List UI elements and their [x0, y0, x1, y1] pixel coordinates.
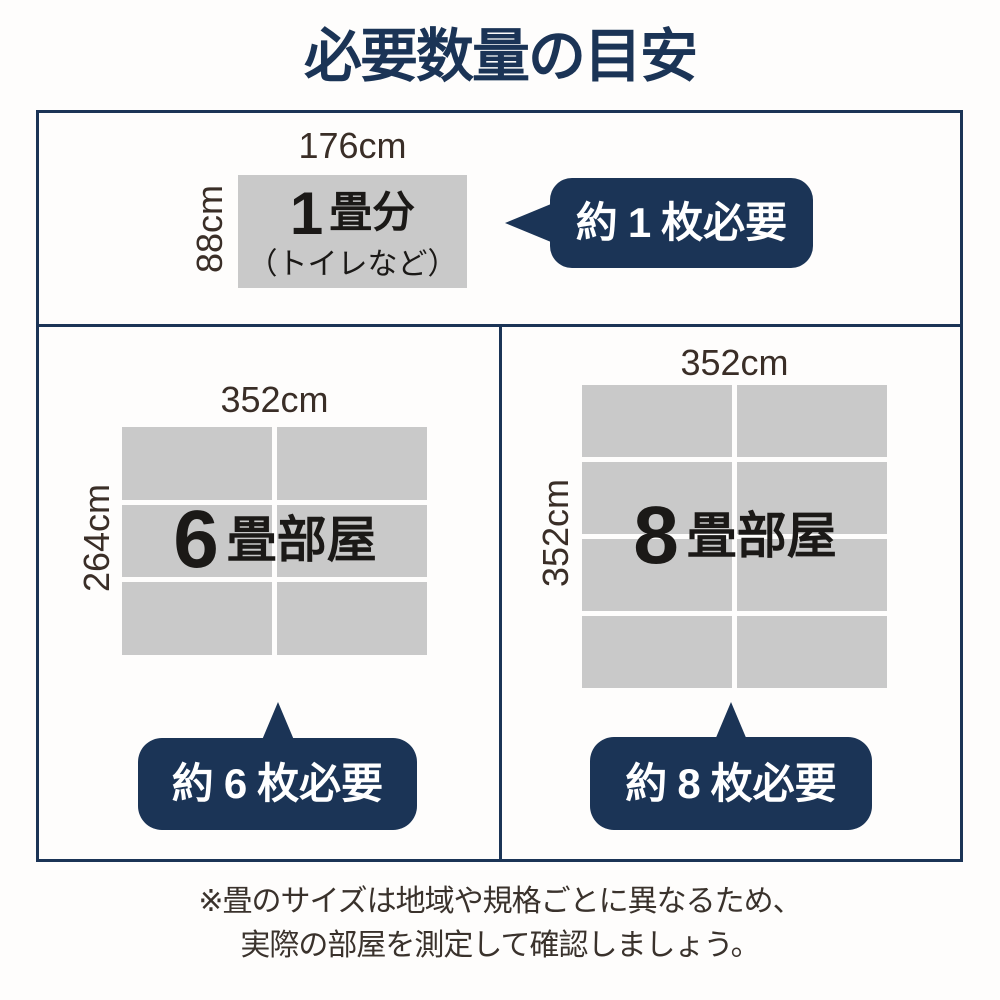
- one-tatami-unit: 畳分: [329, 192, 415, 235]
- room-label: 畳部屋: [687, 511, 837, 561]
- one-tatami-note: （トイレなど）: [248, 250, 458, 280]
- bubble-text: 約: [576, 202, 618, 244]
- footer-note-line2: 実際の部屋を測定して確認しましょう。: [0, 924, 1000, 968]
- six-tatami-height-label: 264cm: [79, 484, 115, 592]
- eight-tatami-bubble: 約8枚必要: [590, 737, 872, 830]
- bubble-text: 枚必要: [711, 763, 837, 805]
- tatami-cell: [277, 427, 427, 500]
- one-tatami-title: 1 畳分: [290, 184, 415, 244]
- tatami-cell: [122, 582, 272, 655]
- one-tatami-bubble: 約1枚必要: [550, 178, 813, 268]
- bubble-tail-up-icon: [262, 702, 294, 740]
- tatami-cell: [737, 616, 887, 688]
- room-number: 8: [633, 495, 679, 577]
- one-tatami-number: 1: [290, 184, 323, 244]
- one-tatami-height-label: 88cm: [192, 185, 228, 273]
- room-label: 畳部屋: [227, 515, 377, 565]
- six-tatami-width-label: 352cm: [122, 382, 427, 418]
- bubble-tail-left-icon: [505, 204, 551, 242]
- page-title: 必要数量の目安: [0, 24, 1000, 90]
- room-number: 6: [173, 499, 219, 581]
- bubble-text: 枚必要: [257, 763, 383, 805]
- one-tatami-rect: 1 畳分 （トイレなど）: [238, 175, 467, 288]
- bubble-text: 約: [625, 763, 667, 805]
- bubble-tail-up-icon: [715, 702, 747, 740]
- six-tatami-bubble: 約6枚必要: [138, 738, 417, 830]
- footer-note-line1: ※畳のサイズは地域や規格ごとに異なるため、: [0, 880, 1000, 924]
- bubble-count: 8: [677, 763, 700, 805]
- bubble-count: 6: [224, 763, 247, 805]
- footer-note: ※畳のサイズは地域や規格ごとに異なるため、 実際の部屋を測定して確認しましょう。: [0, 880, 1000, 968]
- one-tatami-width-label: 176cm: [238, 128, 467, 164]
- eight-tatami-height-label: 352cm: [538, 479, 574, 587]
- tatami-cell: [277, 582, 427, 655]
- tatami-cell: [582, 616, 732, 688]
- bubble-text: 約: [172, 763, 214, 805]
- divider-vertical: [499, 324, 502, 862]
- infographic-canvas: 必要数量の目安 176cm 88cm 1 畳分 （トイレなど） 約1枚必要 35…: [0, 0, 1000, 1000]
- bubble-count: 1: [628, 202, 651, 244]
- eight-tatami-room-title: 8 畳部屋: [633, 495, 837, 577]
- tatami-cell: [122, 427, 272, 500]
- tatami-cell: [582, 385, 732, 457]
- bubble-text: 枚必要: [661, 202, 787, 244]
- eight-tatami-width-label: 352cm: [582, 345, 887, 381]
- six-tatami-room-title: 6 畳部屋: [173, 499, 377, 581]
- tatami-cell: [737, 385, 887, 457]
